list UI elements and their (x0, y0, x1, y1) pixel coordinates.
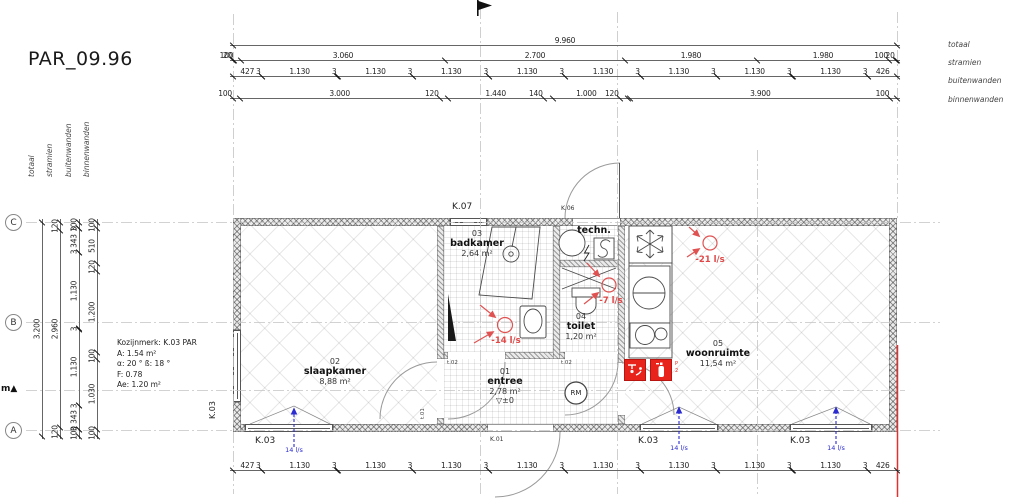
dim-label: 20 (886, 51, 895, 60)
dim-row-label-buitenwanden: buitenwanden (948, 76, 1002, 85)
dim-label: 100 (218, 89, 232, 98)
dim-label: 3.000 (329, 89, 349, 98)
dim-label: 3 (559, 461, 564, 470)
dim-label: 1.130 (289, 461, 309, 470)
dim-graphic (230, 60, 900, 61)
dim-label: 120 (425, 89, 439, 98)
dim-label: 3 (711, 461, 716, 470)
dim-label: 3 (256, 67, 261, 76)
grid-bubble-c: C (5, 214, 22, 231)
kozijn-line: F: 0.78 (117, 370, 197, 381)
dim-label: 1.130 (441, 67, 461, 76)
dim-label: 1.130 (744, 67, 764, 76)
dim-graphic (230, 45, 900, 46)
supply-label-2: 14 l/s (670, 444, 688, 452)
emergency-shower-icon (624, 359, 646, 381)
room-label-badkamer: 03 badkamer 2,64 m² (450, 229, 504, 258)
wall-right (889, 218, 897, 432)
flag-marker-icon (477, 0, 492, 16)
dim-label: 3 (484, 461, 489, 470)
dim-label: 3 (863, 67, 868, 76)
page-title: PAR_09.96 (28, 48, 133, 70)
door-tag-badkamer: t.02 (447, 360, 458, 366)
kozijn-info: Kozijnmerk: K.03 PAR A: 1.54 m² α: 20 ° … (117, 338, 197, 391)
dim-label: 1.130 (593, 461, 613, 470)
dim-label: 1.130 (744, 461, 764, 470)
kozijn-line: Ae: 1.20 m² (117, 380, 197, 391)
dim-label: 2.700 (525, 51, 545, 60)
room-label-techn: techn. (577, 225, 611, 236)
dim-label: 120 (51, 219, 60, 233)
dim-label: 343 (70, 234, 79, 248)
kozijn-line: Kozijnmerk: K.03 PAR (117, 338, 197, 349)
dim-label: 510 (88, 239, 97, 253)
wall-entree-woonruimte-stub (618, 415, 625, 424)
dim-label: 3 (408, 461, 413, 470)
woonruimte-floor (625, 226, 889, 424)
wall-slaapkamer-badkamer (437, 226, 444, 359)
dim-label: 100 (88, 349, 97, 363)
dim-label: 3.200 (33, 319, 42, 339)
dim-label: 3.060 (333, 51, 353, 60)
wall-bottom-4 (718, 424, 790, 432)
dim-label: 1.130 (820, 461, 840, 470)
dim-label: 3 (635, 67, 640, 76)
supply-label-1: 14 l/s (285, 446, 303, 454)
door-opening-k01 (488, 424, 553, 432)
tag-k06: K.06 (561, 205, 574, 212)
window-k03-left (233, 330, 241, 402)
wall-bottom-2 (333, 424, 488, 432)
window-k03-woonruimte-1 (640, 424, 718, 432)
dim-label: 1.980 (813, 51, 833, 60)
grid-bubble-a: A (5, 422, 22, 439)
dim-label: 120 (605, 89, 619, 98)
tag-k03-woonruimte-2: K.03 (790, 436, 810, 446)
tag-k07: K.07 (452, 202, 472, 212)
dim-label: 3 (70, 403, 79, 408)
dim-label: 100 (70, 426, 79, 440)
dim-label: 3 (332, 461, 337, 470)
wall-top-3 (620, 218, 897, 226)
window-k03-slaapkamer (245, 424, 333, 432)
dim-label: 3 (711, 67, 716, 76)
dim-label: 1.130 (365, 461, 385, 470)
dim-label: 426 (876, 461, 890, 470)
dim-label: 426 (876, 67, 890, 76)
dim-label: 1.130 (365, 67, 385, 76)
extract-label-toilet: -7 l/s (599, 296, 622, 306)
dim-label: 1.000 (576, 89, 596, 98)
dim-graphic (230, 98, 900, 99)
dim-label: 1.130 (669, 67, 689, 76)
dim-label: 1.980 (681, 51, 701, 60)
tag-k03-left: K.03 (208, 401, 217, 419)
wall-top-1 (233, 218, 450, 226)
dim-label: 3 (635, 461, 640, 470)
dim-label: 1.130 (593, 67, 613, 76)
dim-label: 100 (876, 89, 890, 98)
extinguisher-class-n: 2 (675, 368, 678, 374)
dim-label: 1.130 (517, 67, 537, 76)
dim-label: 1.200 (88, 302, 97, 322)
dim-label: 3 (559, 67, 564, 76)
kozijn-line: A: 1.54 m² (117, 349, 197, 360)
dim-label: 1.130 (820, 67, 840, 76)
kozijn-line: α: 20 ° ß: 18 ° (117, 359, 197, 370)
dim-label: 1.030 (88, 384, 97, 404)
dim-col-label-stramien: stramien (45, 144, 54, 177)
dim-label: 3 (787, 461, 792, 470)
wall-techn-toilet (560, 260, 618, 267)
dim-label: 3 (863, 461, 868, 470)
dim-graphic (42, 219, 43, 439)
dim-row-label-totaal: totaal (948, 40, 970, 49)
wall-badkamer-entree-1 (444, 352, 448, 359)
dim-label: 3 (787, 67, 792, 76)
dim-label: 2.960 (51, 319, 60, 339)
dim-label: 120 (88, 261, 97, 275)
dim-label: 1.130 (669, 461, 689, 470)
dim-col-label-buitenwanden: buitenwanden (64, 123, 73, 177)
tag-k03-slaapkamer: K.03 (255, 436, 275, 446)
dim-label: 3 (256, 461, 261, 470)
door-tag-toilet: t.02 (561, 360, 572, 366)
dim-label: 3 (484, 67, 489, 76)
dim-label: 3 (70, 250, 79, 255)
dim-label: 1.130 (289, 67, 309, 76)
dim-label: 3.900 (750, 89, 770, 98)
grid-bubble-b: B (5, 314, 22, 331)
wall-entree-woonruimte (618, 226, 625, 363)
dim-label: 427 (240, 67, 254, 76)
wall-badkamer-toilet (553, 226, 560, 359)
room-label-slaapkamer: 02 slaapkamer 8,88 m² (304, 357, 366, 386)
dim-graphic (97, 219, 98, 439)
dim-label: 100 (220, 51, 234, 60)
tag-k03-woonruimte-1: K.03 (638, 436, 658, 446)
dim-label: 1.130 (441, 461, 461, 470)
extinguisher-class-p: P (675, 361, 678, 367)
wall-slaapkamer-stub (437, 418, 444, 424)
dim-label: 3 (332, 67, 337, 76)
dim-label: 427 (240, 461, 254, 470)
dim-label: 1.130 (70, 280, 79, 300)
door-tag-slaapkamer: t.01 (420, 408, 426, 419)
dim-row-label-stramien: stramien (948, 58, 981, 67)
dim-col-label-totaal: totaal (27, 155, 36, 177)
level-datum-marker: m▲ (1, 384, 17, 394)
dim-graphic (60, 219, 61, 439)
dim-row-label-binnenwanden: binnenwanden (948, 95, 1003, 104)
dim-label: 3 (70, 327, 79, 332)
dim-label: 1.130 (517, 461, 537, 470)
tag-k01: K.01 (490, 436, 503, 443)
dim-label: 140 (529, 89, 543, 98)
dim-label: 3 (70, 227, 79, 232)
dim-label: 9.960 (555, 36, 575, 45)
room-label-woonruimte: 05 woonruimte 11,54 m² (686, 339, 750, 368)
dim-label: 343 (70, 411, 79, 425)
window-k03-woonruimte-2 (790, 424, 872, 432)
room-label-toilet: 04 toilet 1,20 m² (565, 312, 596, 341)
wall-left-2 (233, 402, 241, 432)
dim-label: 100 (88, 219, 97, 233)
dim-label: 3 (408, 67, 413, 76)
window-k07 (450, 218, 487, 226)
room-label-entree: 01 entree 2,78 m² ▽±0 (487, 367, 522, 405)
extract-label-woonruimte: -21 l/s (695, 255, 724, 265)
level-marker: ▽±0 (487, 396, 522, 405)
floorplan-drawing: PAR_09.96 (0, 0, 1024, 498)
dim-col-label-binnenwanden: binnenwanden (82, 122, 91, 177)
smoke-detector-label: RM (571, 389, 582, 397)
slaapkamer-floor (241, 226, 437, 424)
supply-label-3: 14 l/s (827, 444, 845, 452)
dim-label: 100 (88, 426, 97, 440)
dim-label: 120 (51, 425, 60, 439)
dim-label: 1.130 (70, 357, 79, 377)
wall-top-2 (487, 218, 573, 226)
wall-bottom-3 (553, 424, 640, 432)
fire-extinguisher-icon (650, 359, 672, 381)
extract-label-badkamer: -14 l/s (491, 336, 520, 346)
wall-left-1 (233, 218, 241, 330)
entree-floor (444, 359, 618, 424)
dim-label: 1.440 (485, 89, 505, 98)
